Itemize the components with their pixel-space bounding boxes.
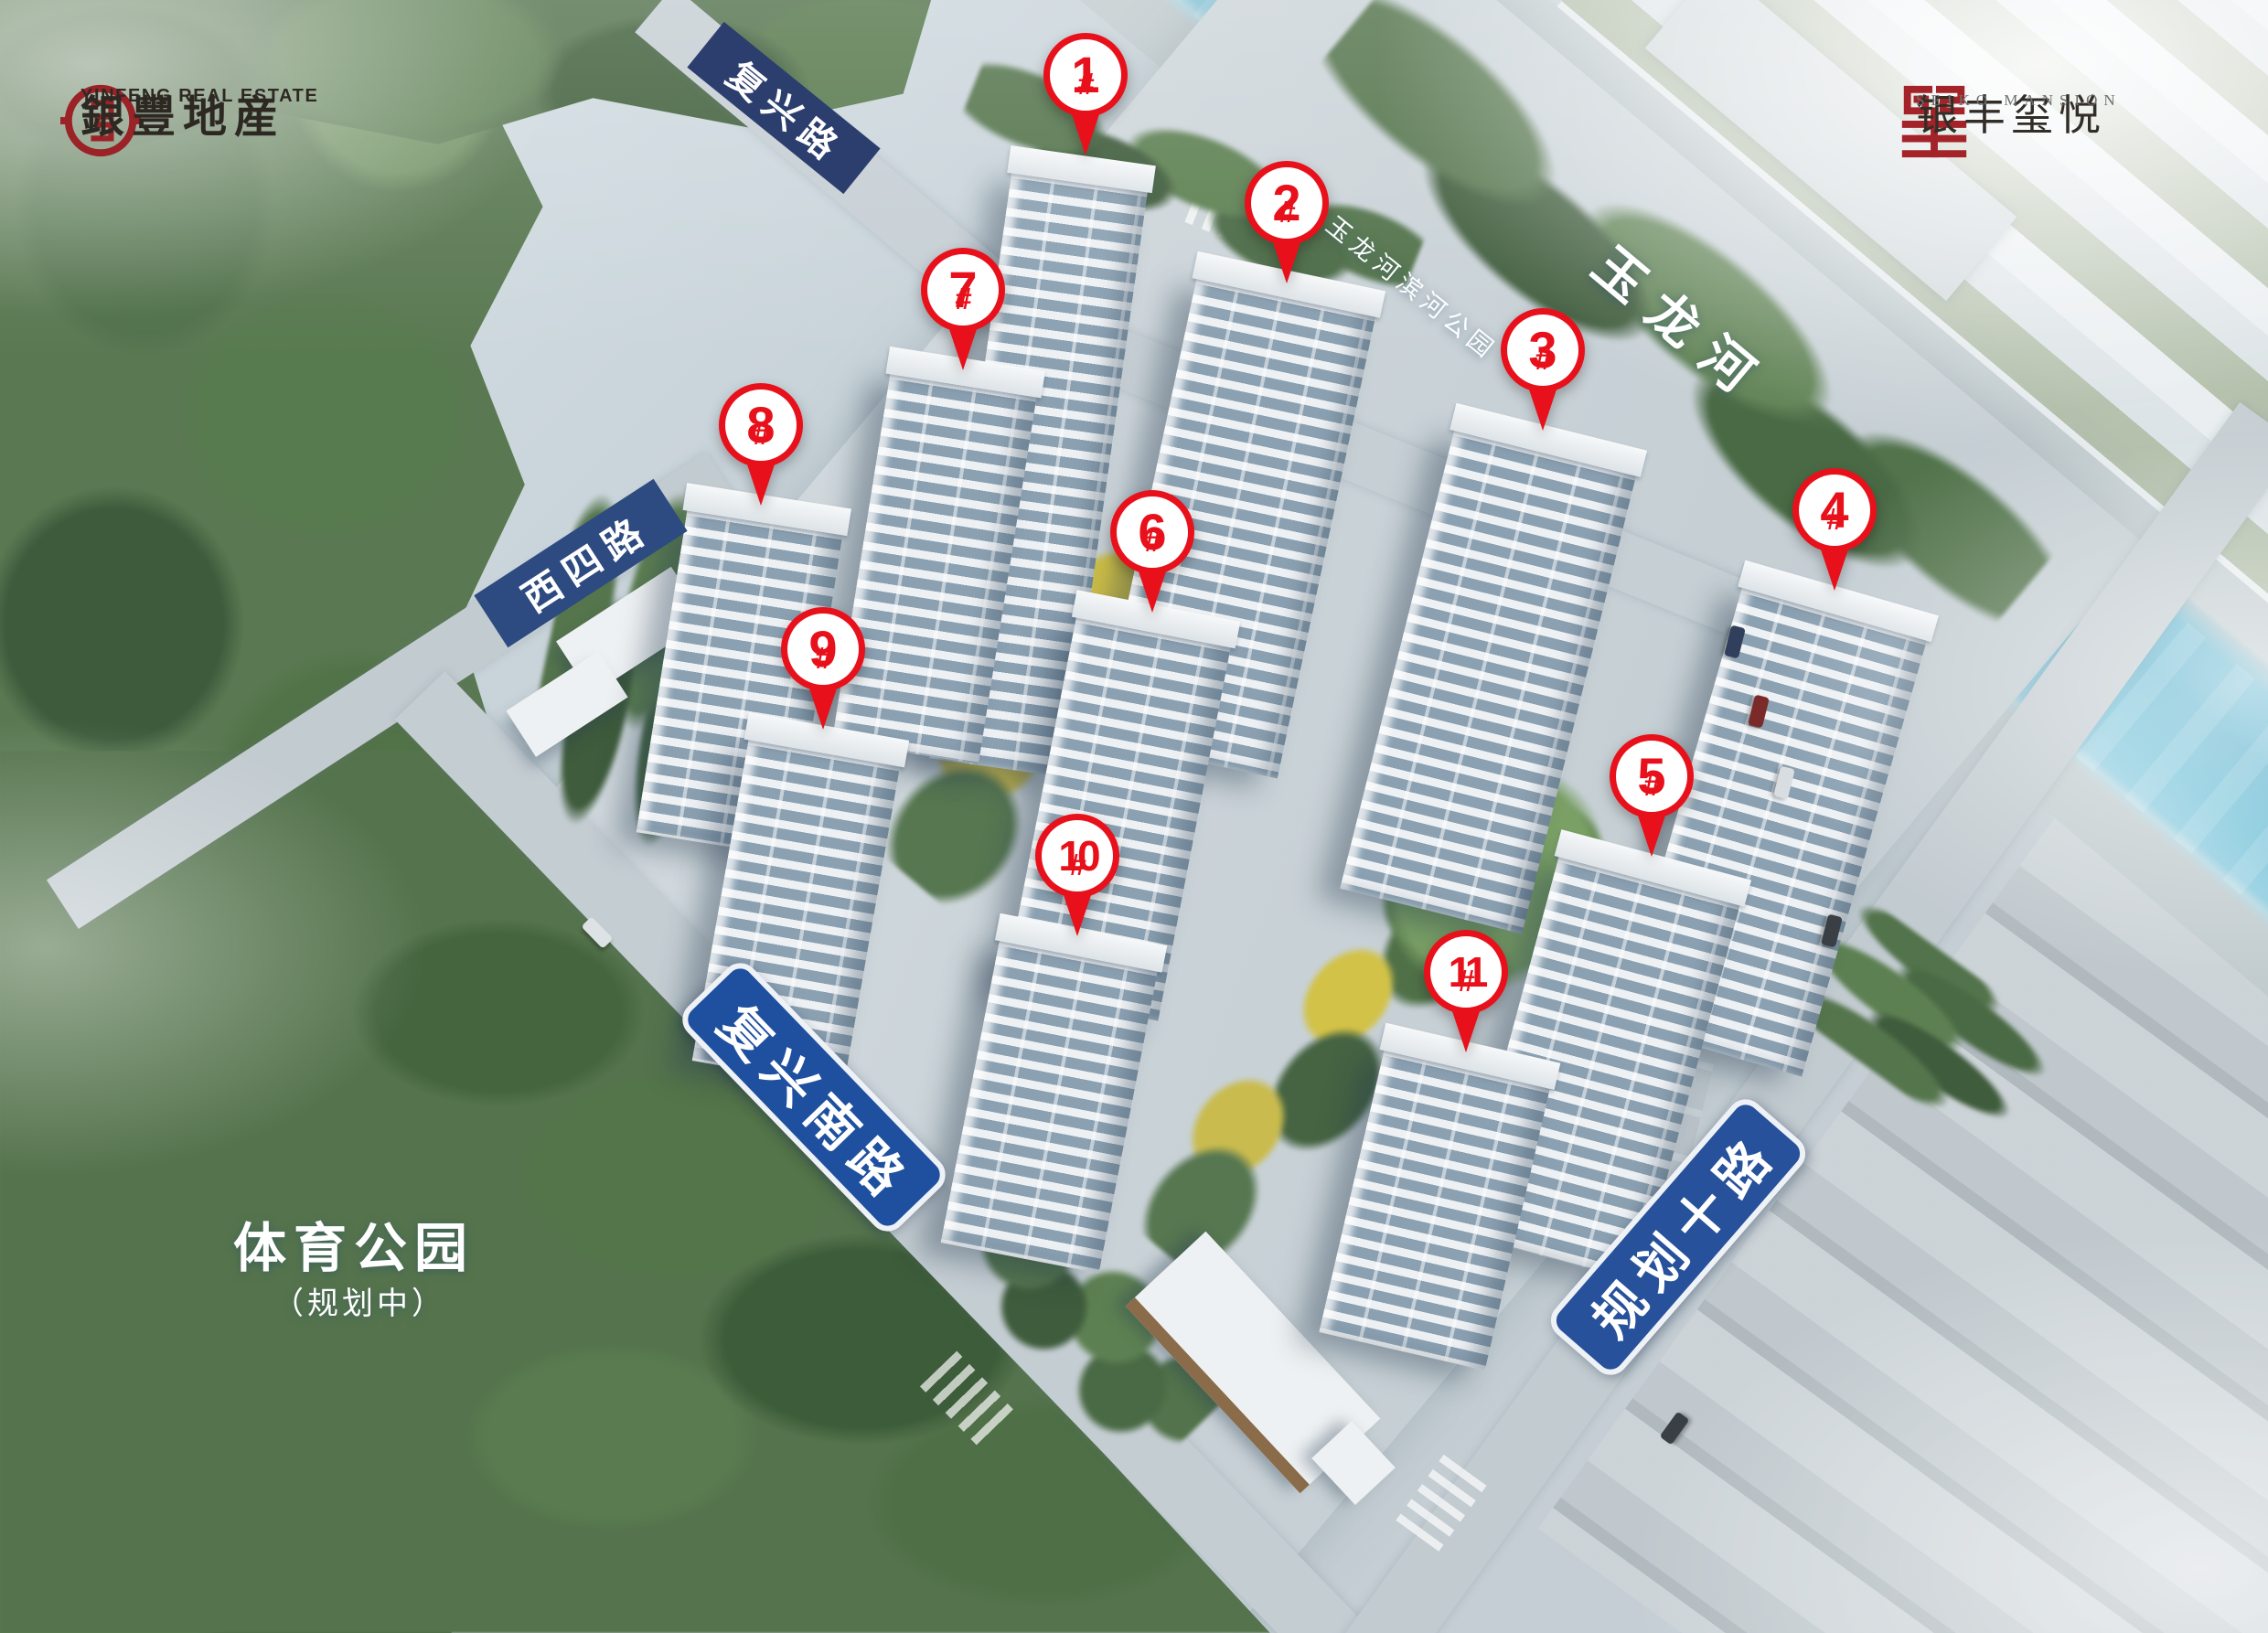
marker-circle: 2# [1245, 161, 1329, 245]
marker-circle: 4# [1792, 468, 1877, 552]
hash-icon: # [1643, 770, 1660, 800]
building-marker-9[interactable]: 9# [781, 607, 865, 733]
marker-circle: 9# [781, 607, 865, 691]
hash-icon: # [1077, 69, 1094, 99]
building-marker-6[interactable]: 6# [1110, 490, 1194, 616]
building-marker-4[interactable]: 4# [1792, 468, 1877, 594]
marker-circle: 3# [1501, 308, 1585, 392]
sports-park-label: 体育公园 [233, 1205, 475, 1282]
marker-circle: 5# [1610, 734, 1694, 818]
hash-icon: # [753, 419, 769, 449]
hash-icon: # [1144, 526, 1161, 556]
building-marker-10[interactable]: 10# [1035, 814, 1119, 940]
sports-park-note: （规划中） [273, 1278, 446, 1323]
hash-icon: # [955, 283, 971, 314]
building-marker-8[interactable]: 8# [719, 383, 803, 509]
building-marker-2[interactable]: 2# [1245, 161, 1329, 287]
masterplan-rendering: 复兴路 西四路 复兴南路 规划十路 玉龙河 玉龙河滨河公园 体育公园 （规划中）… [0, 0, 2268, 1633]
marker-circle: 6# [1110, 490, 1194, 574]
hash-icon: # [815, 643, 831, 673]
developer-name-en: YINFENG REAL ESTATE [80, 86, 318, 107]
marker-circle: 10# [1035, 814, 1119, 898]
project-name-en: SEIKO MANSION [1916, 91, 2122, 110]
hash-icon: # [1535, 344, 1551, 374]
marker-circle: 1# [1043, 33, 1128, 117]
marker-circle: 7# [921, 248, 1005, 332]
hash-icon: # [1069, 849, 1086, 880]
building-marker-7[interactable]: 7# [921, 248, 1005, 374]
building-marker-5[interactable]: 5# [1610, 734, 1694, 860]
hash-icon: # [1278, 197, 1295, 227]
building-marker-11[interactable]: 11# [1424, 930, 1508, 1056]
hash-icon: # [1826, 504, 1843, 534]
building-marker-3[interactable]: 3# [1501, 308, 1585, 434]
hash-icon: # [1458, 966, 1474, 996]
building-marker-1[interactable]: 1# [1043, 33, 1128, 159]
marker-circle: 11# [1424, 930, 1508, 1014]
marker-circle: 8# [719, 383, 803, 467]
